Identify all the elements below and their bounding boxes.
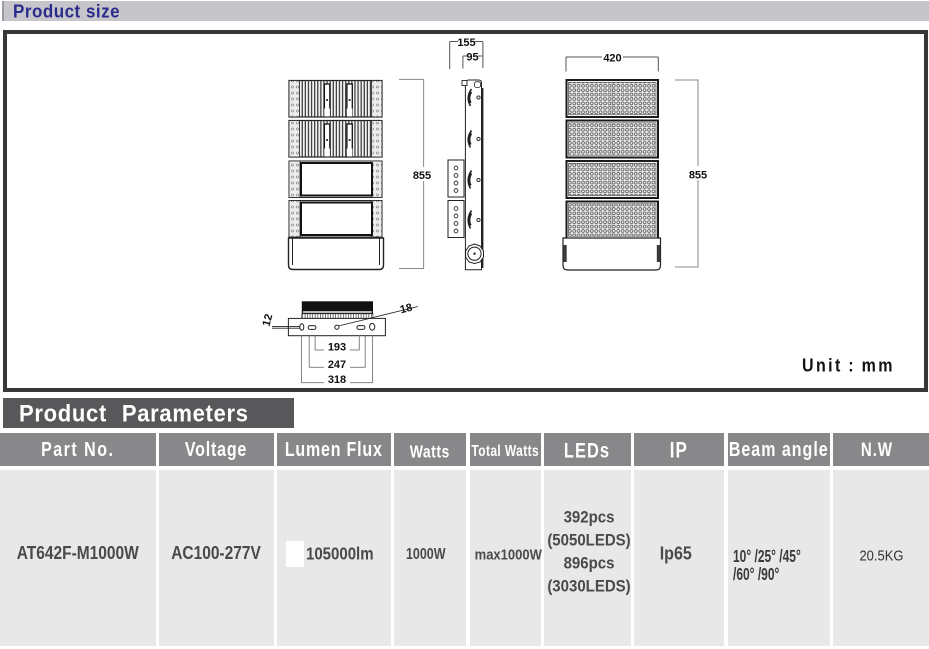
svg-text:855: 855 <box>689 170 707 182</box>
svg-text:95: 95 <box>466 52 478 64</box>
svg-text:247: 247 <box>328 359 346 371</box>
svg-text:318: 318 <box>328 374 346 386</box>
svg-text:12: 12 <box>261 313 276 328</box>
svg-text:18: 18 <box>399 302 414 317</box>
svg-text:193: 193 <box>328 342 346 354</box>
svg-text:855: 855 <box>413 170 431 182</box>
svg-text:420: 420 <box>603 53 621 65</box>
svg-text:155: 155 <box>457 37 475 49</box>
